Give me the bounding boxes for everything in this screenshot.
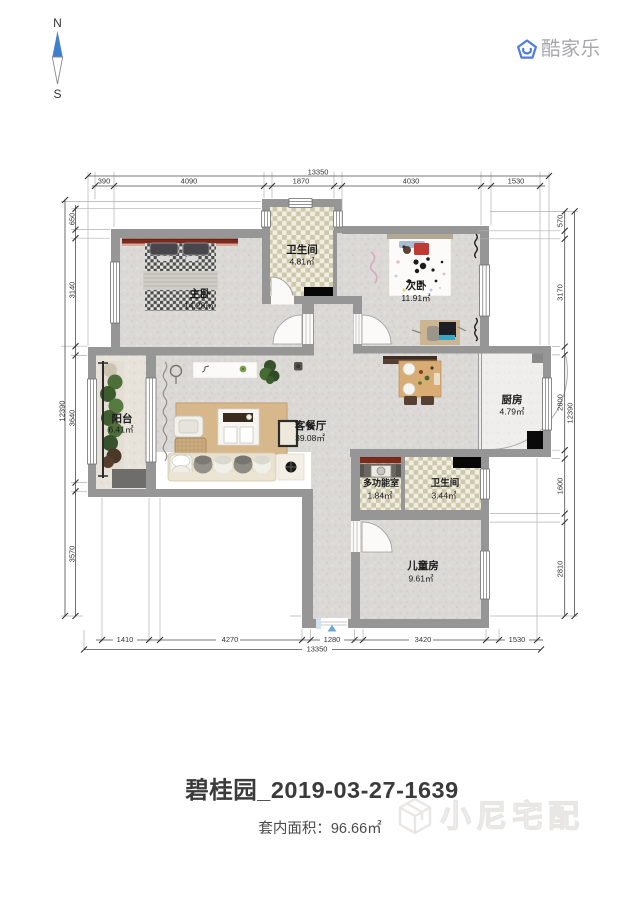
svg-text:1600: 1600 bbox=[556, 478, 565, 495]
svg-text:厨房: 厨房 bbox=[502, 393, 523, 406]
svg-text:小尼宅配: 小尼宅配 bbox=[440, 799, 584, 834]
svg-text:13350: 13350 bbox=[307, 645, 328, 654]
svg-text:39.08㎡: 39.08㎡ bbox=[295, 433, 325, 443]
svg-text:3170: 3170 bbox=[556, 284, 565, 301]
svg-text:3140: 3140 bbox=[68, 282, 77, 299]
svg-text:儿童房: 儿童房 bbox=[406, 559, 439, 572]
svg-text:S: S bbox=[53, 87, 61, 101]
svg-text:390: 390 bbox=[98, 177, 111, 186]
svg-text:3640: 3640 bbox=[68, 410, 77, 427]
svg-text:4030: 4030 bbox=[403, 177, 420, 186]
svg-text:客餐厅: 客餐厅 bbox=[294, 419, 327, 432]
svg-text:3420: 3420 bbox=[415, 635, 432, 644]
svg-text:4.79㎡: 4.79㎡ bbox=[499, 407, 525, 417]
svg-text:650: 650 bbox=[68, 213, 77, 226]
svg-text:3570: 3570 bbox=[68, 546, 77, 563]
svg-text:1530: 1530 bbox=[508, 177, 525, 186]
svg-text:3.44㎡: 3.44㎡ bbox=[431, 491, 457, 501]
svg-text:4270: 4270 bbox=[222, 635, 239, 644]
svg-text:卫生间: 卫生间 bbox=[286, 243, 318, 256]
svg-text:主卧: 主卧 bbox=[190, 287, 211, 300]
svg-text:次卧: 次卧 bbox=[406, 279, 427, 292]
svg-text:4090: 4090 bbox=[181, 177, 198, 186]
svg-text:2810: 2810 bbox=[556, 561, 565, 578]
svg-text:12390: 12390 bbox=[58, 401, 67, 422]
svg-text:1410: 1410 bbox=[117, 635, 134, 644]
svg-text:12390: 12390 bbox=[565, 403, 574, 424]
svg-text:11.91㎡: 11.91㎡ bbox=[401, 293, 431, 303]
svg-text:阳台: 阳台 bbox=[112, 412, 133, 425]
svg-text:14.28㎡: 14.28㎡ bbox=[184, 301, 214, 311]
svg-text:1530: 1530 bbox=[509, 635, 526, 644]
svg-text:4.81㎡: 4.81㎡ bbox=[289, 257, 315, 267]
svg-text:13350: 13350 bbox=[308, 168, 329, 177]
svg-text:套内面积：96.66㎡: 套内面积：96.66㎡ bbox=[258, 820, 382, 837]
svg-text:1280: 1280 bbox=[324, 635, 341, 644]
svg-text:1870: 1870 bbox=[293, 177, 310, 186]
svg-text:多功能室: 多功能室 bbox=[363, 477, 399, 488]
svg-text:N: N bbox=[53, 16, 62, 30]
svg-text:6.41㎡: 6.41㎡ bbox=[108, 425, 134, 435]
svg-text:酷家乐: 酷家乐 bbox=[541, 38, 600, 60]
svg-text:卫生间: 卫生间 bbox=[431, 477, 460, 489]
svg-text:570: 570 bbox=[556, 215, 565, 228]
svg-text:1.84㎡: 1.84㎡ bbox=[367, 491, 393, 501]
svg-text:2800: 2800 bbox=[556, 394, 565, 411]
svg-text:9.61㎡: 9.61㎡ bbox=[408, 574, 434, 584]
